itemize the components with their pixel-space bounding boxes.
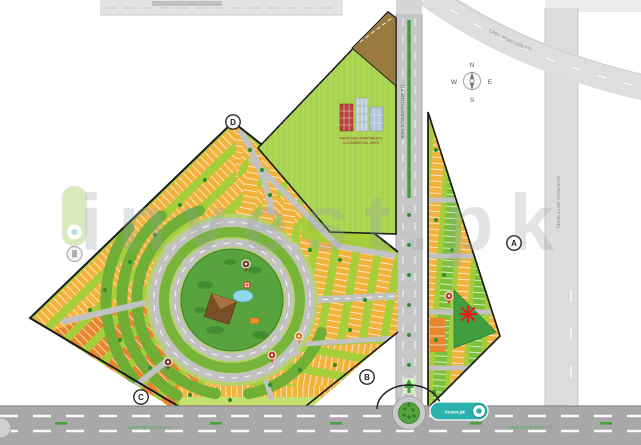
marker-d: D — [226, 115, 240, 129]
bottom-road: MAIN ROAD (200 FT) MAIN ROAD (200 FT) — [0, 406, 641, 445]
mosque-star-icon — [460, 306, 476, 322]
watermark-text: invest.pk — [80, 178, 560, 267]
compass-w: W — [451, 79, 458, 86]
pond — [233, 290, 253, 302]
building-caption-2: & COMMERCIAL AREA — [343, 141, 380, 145]
master-plan-map: MAIN ROAD (50 FT WIDE) CPEC ROAD (150 FT… — [0, 0, 641, 445]
brand-badge: invest.pk — [430, 402, 488, 420]
brand-badge-label: invest.pk — [445, 410, 465, 415]
site-plan-svg: MAIN ROAD (50 FT WIDE) CPEC ROAD (150 FT… — [0, 0, 641, 445]
svg-text:D: D — [230, 118, 236, 127]
boulevard-label: MAIN BOULEVARD (100 FT) — [400, 84, 405, 139]
bench-icon — [250, 318, 259, 324]
bottom-road-label-left: MAIN ROAD (200 FT) — [128, 425, 173, 430]
marker-c: C — [134, 390, 148, 404]
compass-s: S — [470, 97, 475, 104]
svg-text:B: B — [364, 373, 370, 382]
svg-text:A: A — [511, 239, 517, 248]
compass-n: N — [470, 62, 475, 69]
svg-text:C: C — [138, 393, 144, 402]
bottom-road-label-right: MAIN ROAD (200 FT) — [508, 425, 553, 430]
marker-a: A — [507, 236, 521, 250]
pinwheel-icon — [244, 282, 250, 288]
compass-e: E — [488, 79, 493, 86]
building-caption-1: PROPOSED APARTMENTS — [340, 137, 384, 141]
marker-b: B — [360, 370, 374, 384]
